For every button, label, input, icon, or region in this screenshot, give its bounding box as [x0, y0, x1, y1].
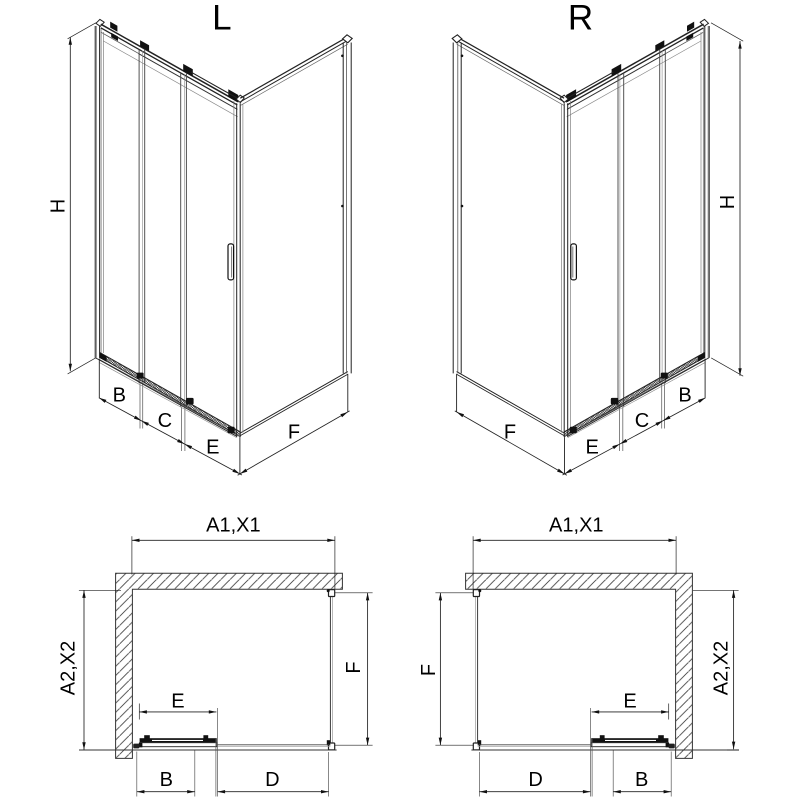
- svg-text:C: C: [635, 410, 649, 432]
- svg-text:E: E: [586, 436, 599, 458]
- svg-text:R: R: [568, 0, 593, 38]
- svg-text:E: E: [206, 436, 219, 458]
- svg-text:B: B: [160, 769, 173, 791]
- svg-text:F: F: [504, 422, 516, 444]
- svg-text:F: F: [288, 422, 300, 444]
- svg-text:A2,X2: A2,X2: [57, 641, 79, 695]
- svg-text:B: B: [678, 385, 691, 407]
- svg-text:L: L: [212, 0, 231, 38]
- svg-text:C: C: [158, 410, 172, 432]
- svg-text:E: E: [623, 691, 636, 713]
- svg-text:B: B: [635, 769, 648, 791]
- svg-text:D: D: [528, 769, 542, 791]
- svg-text:B: B: [113, 385, 126, 407]
- svg-text:E: E: [171, 691, 184, 713]
- svg-text:H: H: [717, 195, 739, 209]
- svg-text:A1,X1: A1,X1: [206, 515, 260, 537]
- svg-text:A1,X1: A1,X1: [549, 515, 603, 537]
- svg-text:D: D: [265, 769, 279, 791]
- svg-text:H: H: [48, 199, 70, 213]
- svg-text:F: F: [418, 664, 440, 676]
- svg-text:F: F: [343, 661, 365, 673]
- svg-text:A2,X2: A2,X2: [710, 641, 732, 695]
